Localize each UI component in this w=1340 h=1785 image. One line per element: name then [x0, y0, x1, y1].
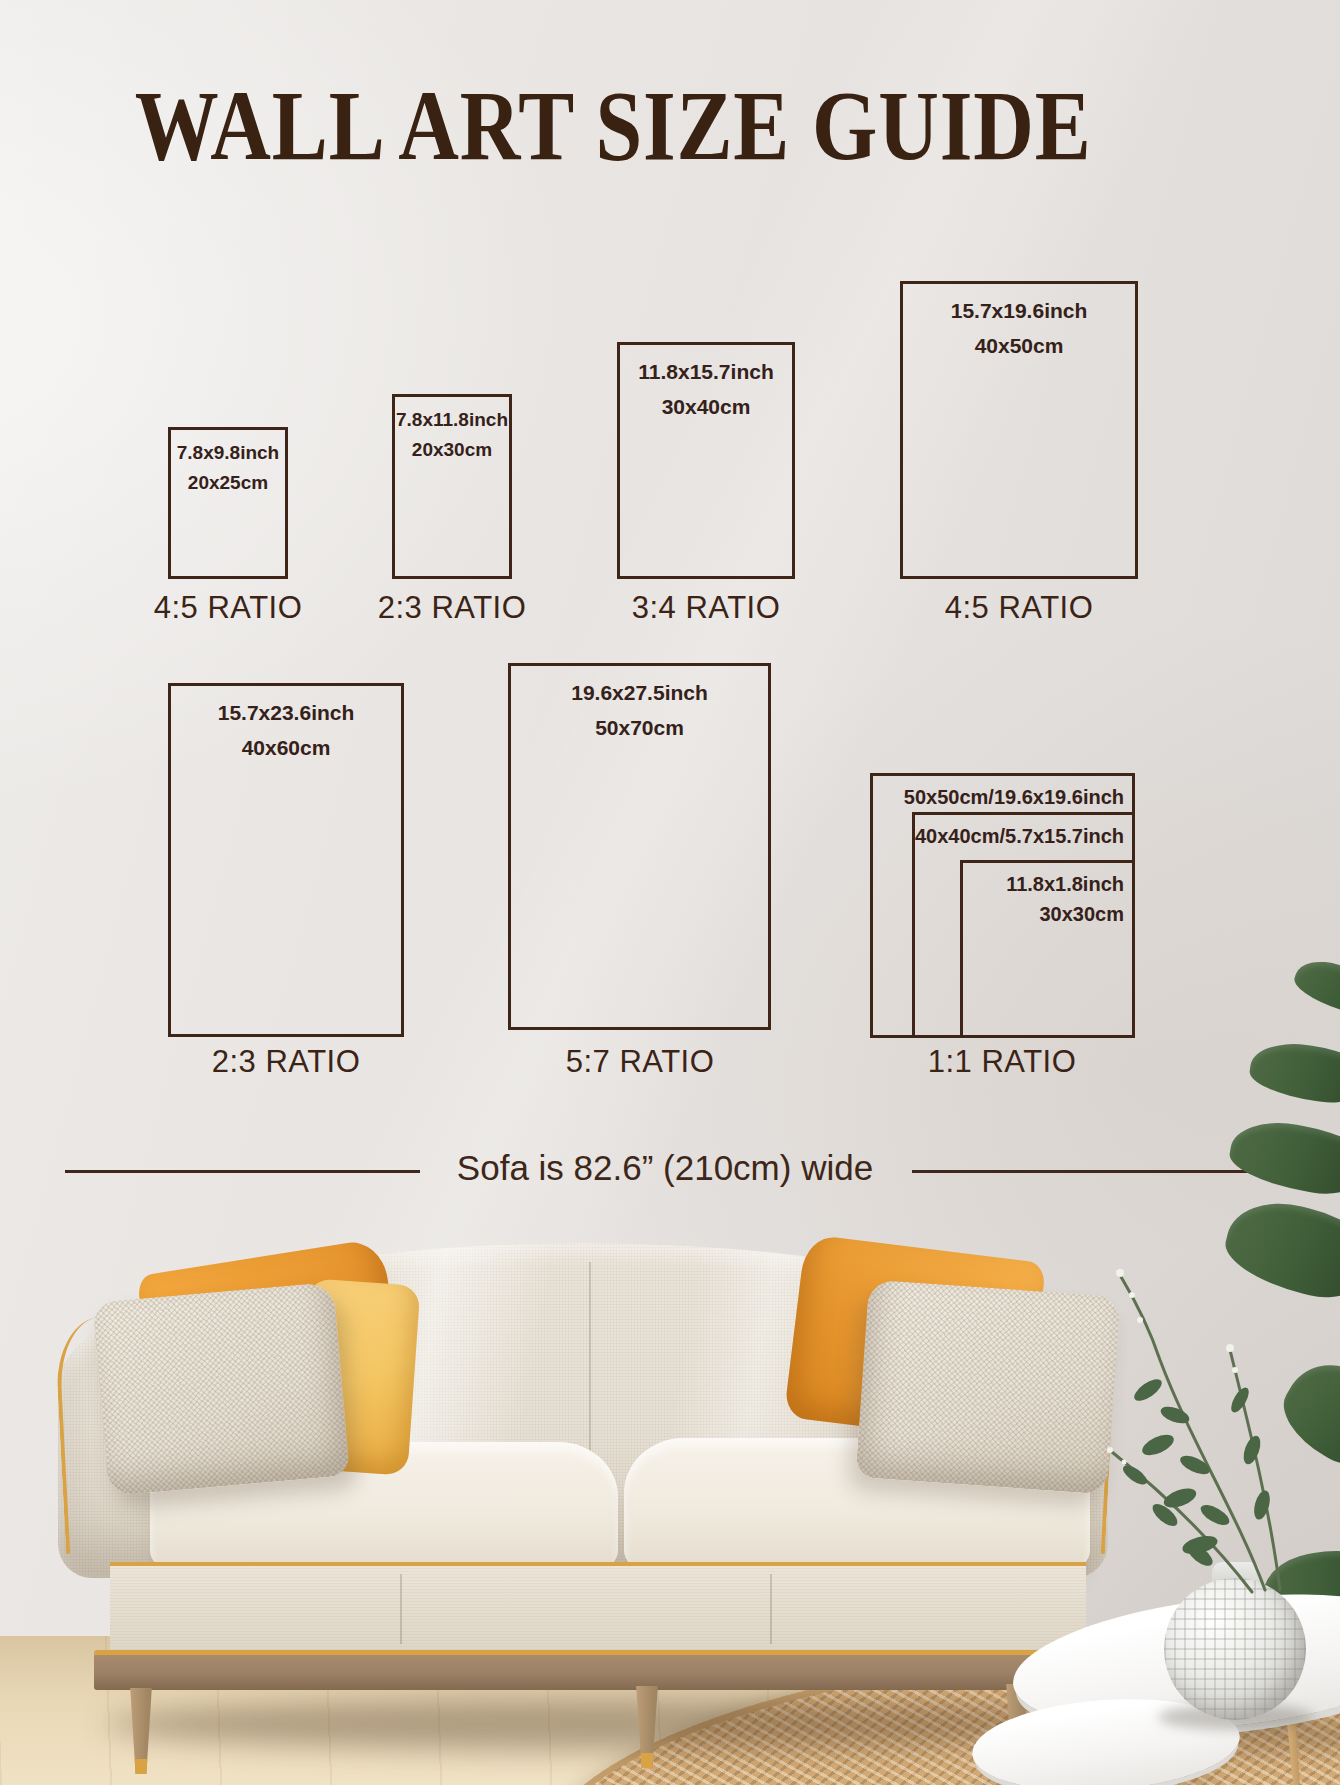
- dimension-cm: 40x50cm: [903, 329, 1135, 364]
- pillow-textured-left: [92, 1282, 350, 1496]
- size-frame-30x30: 11.8x1.8inch 30x30cm: [960, 860, 1135, 1038]
- dimension-inch: 11.8x1.8inch: [963, 869, 1124, 899]
- sofa-wood-base: [94, 1650, 1098, 1690]
- ratio-label: 2:3 RATIO: [212, 1044, 361, 1080]
- frame-dimensions: 11.8x1.8inch 30x30cm: [963, 863, 1132, 929]
- sofa-width-caption: Sofa is 82.6” (210cm) wide: [425, 1148, 905, 1188]
- dimension-inch: 15.7x23.6inch: [171, 696, 401, 731]
- ratio-label: 2:3 RATIO: [378, 590, 527, 626]
- dimension-inch: 7.8x11.8inch: [395, 405, 509, 435]
- vase-plant-sprigs: [1040, 1240, 1320, 1600]
- dimension-inch: 19.6x27.5inch: [511, 676, 768, 711]
- ratio-label: 3:4 RATIO: [632, 590, 781, 626]
- size-frame-50x70: 19.6x27.5inch 50x70cm: [508, 663, 771, 1030]
- sofa-shadow: [105, 1698, 1105, 1750]
- frame-dimensions: 19.6x27.5inch 50x70cm: [511, 666, 768, 745]
- size-frame-30x40: 11.8x15.7inch 30x40cm: [617, 342, 795, 579]
- size-frame-20x30: 7.8x11.8inch 20x30cm: [392, 394, 512, 579]
- dimension-cm: 20x30cm: [395, 435, 509, 465]
- frame-dimensions: 15.7x23.6inch 40x60cm: [171, 686, 401, 765]
- size-frame-40x60: 15.7x23.6inch 40x60cm: [168, 683, 404, 1037]
- dimension-cm: 50x70cm: [511, 711, 768, 746]
- caption-rule-left: [65, 1170, 420, 1173]
- frame-dimensions: 50x50cm/19.6x19.6inch: [873, 776, 1132, 812]
- frame-dimensions: 7.8x9.8inch 20x25cm: [171, 430, 285, 499]
- dimension-cm: 30x40cm: [620, 390, 792, 425]
- ratio-label: 1:1 RATIO: [928, 1044, 1077, 1080]
- plant-leaf: [1247, 1038, 1340, 1108]
- dimension-inch: 7.8x9.8inch: [171, 438, 285, 468]
- caption-rule-right: [912, 1170, 1278, 1173]
- page-title: WALL ART SIZE GUIDE: [135, 68, 1025, 183]
- dimension-cm: 30x30cm: [963, 899, 1124, 929]
- ratio-label: 5:7 RATIO: [566, 1044, 715, 1080]
- size-frame-40x50: 15.7x19.6inch 40x50cm: [900, 281, 1138, 579]
- frame-dimensions: 15.7x19.6inch 40x50cm: [903, 284, 1135, 363]
- size-frame-20x25: 7.8x9.8inch 20x25cm: [168, 427, 288, 579]
- wall-art-size-guide-poster: WALL ART SIZE GUIDE 7.8x9.8inch 20x25cm …: [0, 0, 1340, 1785]
- frame-dimensions: 7.8x11.8inch 20x30cm: [395, 397, 509, 466]
- ratio-label: 4:5 RATIO: [154, 590, 303, 626]
- dimension-inch: 11.8x15.7inch: [620, 355, 792, 390]
- plant-leaf: [1290, 953, 1340, 1021]
- dimension-cm: 40x60cm: [171, 731, 401, 766]
- ratio-label: 4:5 RATIO: [945, 590, 1094, 626]
- sofa-back-seam: [589, 1262, 591, 1462]
- frame-dimensions: 40x40cm/5.7x15.7inch: [915, 815, 1132, 851]
- dimension-cm: 20x25cm: [171, 468, 285, 498]
- dimension-inch: 15.7x19.6inch: [903, 294, 1135, 329]
- frame-dimensions: 11.8x15.7inch 30x40cm: [620, 345, 792, 424]
- plant-leaf: [1226, 1114, 1340, 1202]
- sofa-front-skirt: [110, 1562, 1086, 1650]
